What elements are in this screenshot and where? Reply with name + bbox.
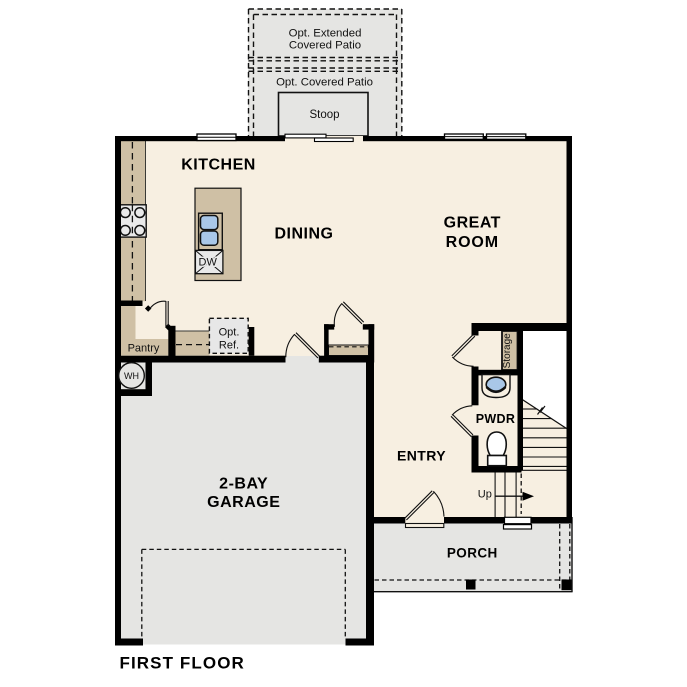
svg-text:WH: WH xyxy=(124,371,139,381)
svg-text:2-BAY: 2-BAY xyxy=(219,476,268,493)
svg-text:DINING: DINING xyxy=(275,225,334,242)
svg-text:Up: Up xyxy=(478,489,492,501)
svg-text:PWDR: PWDR xyxy=(476,412,515,426)
svg-text:Opt.: Opt. xyxy=(219,327,240,339)
svg-text:ENTRY: ENTRY xyxy=(397,448,446,464)
svg-text:Opt. Extended: Opt. Extended xyxy=(289,27,362,39)
svg-text:Pantry: Pantry xyxy=(128,343,160,355)
svg-text:Covered Patio: Covered Patio xyxy=(289,39,361,51)
svg-text:Opt. Covered Patio: Opt. Covered Patio xyxy=(276,76,373,88)
svg-text:GARAGE: GARAGE xyxy=(207,494,280,511)
svg-text:Ref.: Ref. xyxy=(219,340,239,352)
svg-text:ROOM: ROOM xyxy=(446,234,499,251)
svg-text:GREAT: GREAT xyxy=(444,215,501,232)
svg-text:PORCH: PORCH xyxy=(447,546,498,561)
svg-text:Stoop: Stoop xyxy=(309,109,339,121)
svg-text:DW: DW xyxy=(199,257,218,269)
svg-text:Storage: Storage xyxy=(502,333,513,368)
svg-text:FIRST FLOOR: FIRST FLOOR xyxy=(120,653,245,672)
svg-text:KITCHEN: KITCHEN xyxy=(181,157,256,174)
